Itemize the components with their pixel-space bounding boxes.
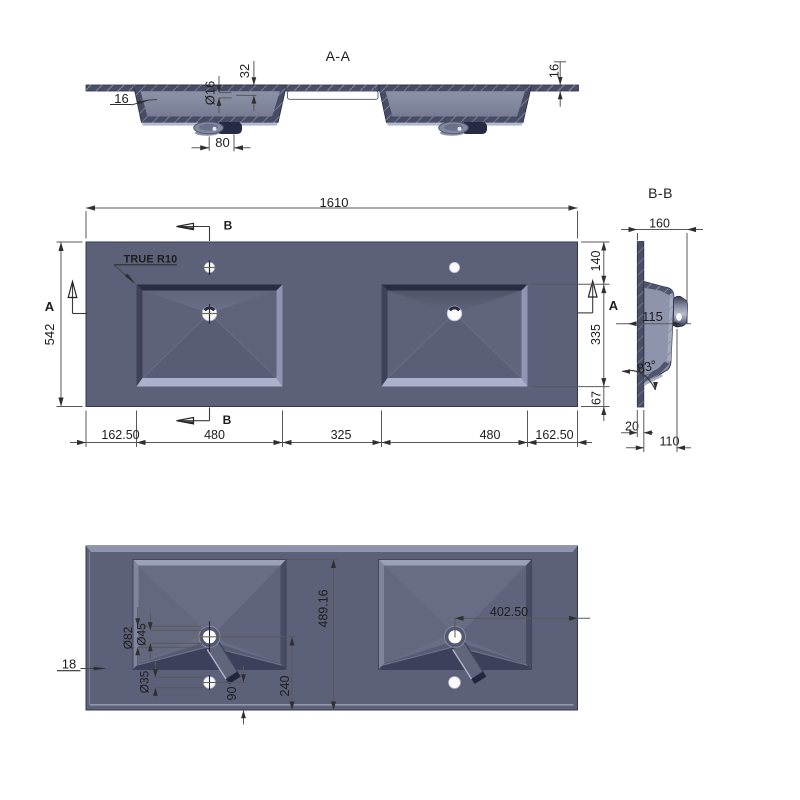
svg-text:80: 80	[215, 135, 229, 150]
svg-text:16: 16	[547, 64, 562, 78]
svg-text:B: B	[223, 413, 232, 427]
svg-text:67: 67	[590, 391, 604, 405]
svg-text:Ø45: Ø45	[135, 623, 149, 646]
svg-text:140: 140	[589, 251, 603, 272]
svg-text:B-B: B-B	[648, 185, 673, 201]
svg-text:A: A	[609, 298, 619, 313]
svg-text:B: B	[224, 219, 233, 233]
svg-text:480: 480	[204, 428, 225, 442]
svg-text:18: 18	[62, 657, 76, 672]
svg-text:Ø35: Ø35	[137, 670, 151, 693]
svg-text:480: 480	[480, 428, 501, 442]
svg-text:162.50: 162.50	[535, 428, 573, 442]
svg-text:489.16: 489.16	[317, 589, 331, 627]
svg-text:32: 32	[237, 64, 252, 78]
svg-text:542: 542	[42, 324, 57, 346]
svg-text:402.50: 402.50	[490, 605, 528, 619]
svg-text:16: 16	[114, 91, 128, 106]
svg-text:A: A	[45, 299, 55, 314]
svg-text:335: 335	[589, 324, 603, 345]
svg-text:115: 115	[642, 309, 663, 324]
svg-text:240: 240	[278, 676, 292, 697]
svg-text:Ø82: Ø82	[121, 626, 135, 649]
svg-text:325: 325	[331, 428, 352, 442]
svg-text:TRUE R10: TRUE R10	[124, 254, 178, 266]
svg-text:90: 90	[225, 687, 239, 701]
svg-text:162.50: 162.50	[101, 428, 139, 442]
svg-text:160: 160	[649, 217, 670, 231]
svg-text:A-A: A-A	[326, 48, 351, 64]
svg-text:Ø16: Ø16	[203, 81, 218, 106]
